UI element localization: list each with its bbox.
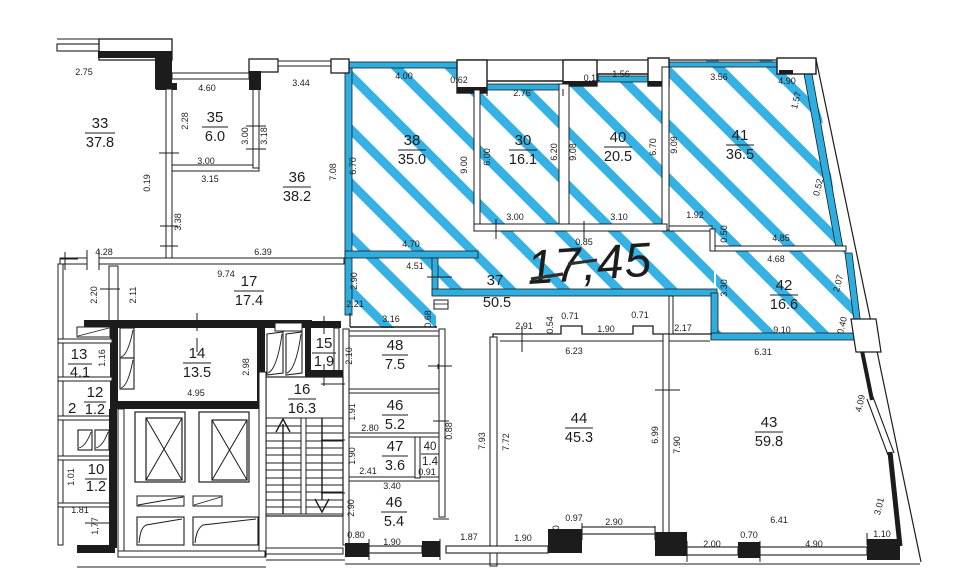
svg-text:4.95: 4.95 <box>187 388 205 398</box>
svg-text:40: 40 <box>610 129 627 146</box>
svg-text:0.70: 0.70 <box>740 530 758 540</box>
svg-text:0.80: 0.80 <box>347 530 365 540</box>
svg-text:6.70: 6.70 <box>648 138 658 156</box>
svg-text:6.20: 6.20 <box>549 143 559 161</box>
svg-text:38: 38 <box>404 132 421 149</box>
svg-text:46: 46 <box>386 494 403 511</box>
svg-text:0.71: 0.71 <box>561 311 579 321</box>
svg-text:0.71: 0.71 <box>631 310 649 320</box>
svg-text:36.5: 36.5 <box>726 147 754 163</box>
svg-text:4.90: 4.90 <box>778 76 796 86</box>
svg-text:2.80: 2.80 <box>361 423 379 433</box>
svg-text:4.70: 4.70 <box>402 239 420 249</box>
svg-text:9.09: 9.09 <box>669 136 679 154</box>
svg-text:12: 12 <box>87 384 104 401</box>
svg-text:6.31: 6.31 <box>754 347 772 357</box>
svg-text:37: 37 <box>487 272 504 289</box>
svg-text:17,45: 17,45 <box>525 234 654 296</box>
svg-text:17: 17 <box>241 273 258 290</box>
svg-text:0.88: 0.88 <box>444 422 454 440</box>
svg-text:7.90: 7.90 <box>672 436 682 454</box>
svg-text:1.9: 1.9 <box>314 354 334 370</box>
svg-text:2.90: 2.90 <box>605 517 623 527</box>
svg-text:6.41: 6.41 <box>770 515 788 525</box>
svg-text:2.98: 2.98 <box>241 358 251 376</box>
svg-text:1.91: 1.91 <box>347 403 357 421</box>
svg-text:50.5: 50.5 <box>483 295 511 311</box>
svg-text:13.5: 13.5 <box>183 365 211 381</box>
svg-text:6.39: 6.39 <box>254 247 272 257</box>
svg-text:0.50: 0.50 <box>719 225 729 243</box>
svg-text:35: 35 <box>207 109 224 126</box>
svg-text:30: 30 <box>515 132 532 149</box>
svg-text:46: 46 <box>387 397 404 414</box>
svg-text:3.15: 3.15 <box>201 174 219 184</box>
svg-text:42: 42 <box>776 277 793 294</box>
svg-text:16.6: 16.6 <box>770 297 798 313</box>
svg-text:1.56: 1.56 <box>612 69 630 79</box>
svg-text:35.0: 35.0 <box>398 152 426 168</box>
svg-text:10: 10 <box>88 461 105 478</box>
svg-text:4.51: 4.51 <box>406 261 424 271</box>
svg-text:3.00: 3.00 <box>197 156 215 166</box>
svg-text:7.08: 7.08 <box>328 163 338 181</box>
svg-text:3.56: 3.56 <box>710 72 728 82</box>
svg-text:48: 48 <box>387 337 404 354</box>
svg-text:2.17: 2.17 <box>674 323 692 333</box>
svg-text:9.00: 9.00 <box>459 156 469 174</box>
svg-text:1.90: 1.90 <box>383 537 401 547</box>
svg-text:2.10: 2.10 <box>344 347 354 365</box>
svg-text:3.38: 3.38 <box>173 213 183 231</box>
svg-text:0.68: 0.68 <box>423 310 433 328</box>
svg-text:6.23: 6.23 <box>565 346 583 356</box>
svg-text:16.3: 16.3 <box>288 401 316 417</box>
svg-text:9.10: 9.10 <box>773 325 791 335</box>
svg-text:6.00: 6.00 <box>482 148 492 166</box>
svg-text:4.60: 4.60 <box>198 83 216 93</box>
svg-text:1.90: 1.90 <box>597 324 615 334</box>
svg-text:3.16: 3.16 <box>382 314 400 324</box>
svg-text:2.28: 2.28 <box>180 112 190 130</box>
svg-text:3.00: 3.00 <box>506 212 524 222</box>
svg-text:7.72: 7.72 <box>501 433 511 451</box>
svg-text:1.10: 1.10 <box>873 529 891 539</box>
svg-text:5.4: 5.4 <box>384 514 404 530</box>
svg-text:2.20: 2.20 <box>89 286 99 304</box>
svg-text:47: 47 <box>387 438 404 455</box>
svg-text:3.18: 3.18 <box>259 127 269 145</box>
svg-text:43: 43 <box>761 414 778 431</box>
svg-text:2.21: 2.21 <box>346 299 364 309</box>
svg-text:0.80: 0.80 <box>551 525 561 543</box>
svg-text:4.00: 4.00 <box>395 71 413 81</box>
svg-text:59.8: 59.8 <box>755 434 783 450</box>
svg-text:2.76: 2.76 <box>513 88 531 98</box>
svg-text:1.01: 1.01 <box>66 468 76 486</box>
svg-text:7.5: 7.5 <box>385 357 405 373</box>
svg-text:3.00: 3.00 <box>240 127 250 145</box>
svg-text:40: 40 <box>424 441 437 453</box>
svg-text:6.0: 6.0 <box>205 129 225 145</box>
svg-text:2.75: 2.75 <box>75 67 93 77</box>
svg-text:44: 44 <box>571 410 588 427</box>
svg-text:1,77: 1,77 <box>90 517 100 535</box>
svg-text:1.90: 1.90 <box>514 533 532 543</box>
svg-text:4.90: 4.90 <box>805 539 823 549</box>
svg-text:37.8: 37.8 <box>86 135 114 151</box>
svg-text:1.90: 1.90 <box>347 447 357 465</box>
svg-text:33: 33 <box>92 115 109 132</box>
svg-text:9.08: 9.08 <box>568 143 578 161</box>
svg-text:1.16: 1.16 <box>97 349 107 367</box>
svg-text:3.30: 3.30 <box>719 279 729 297</box>
svg-text:45.3: 45.3 <box>565 430 593 446</box>
svg-text:16: 16 <box>294 381 311 398</box>
svg-text:0.62: 0.62 <box>450 75 468 85</box>
svg-text:1.2: 1.2 <box>86 479 106 495</box>
svg-text:3.6: 3.6 <box>385 458 405 474</box>
svg-text:2.90: 2.90 <box>349 272 359 290</box>
svg-text:4.28: 4.28 <box>95 247 113 257</box>
svg-text:2.11: 2.11 <box>128 287 138 304</box>
svg-text:4.85: 4.85 <box>772 233 790 243</box>
svg-text:7.93: 7.93 <box>477 432 487 450</box>
svg-text:2.91: 2.91 <box>515 321 533 331</box>
svg-text:3.44: 3.44 <box>292 78 310 88</box>
svg-text:2.41: 2.41 <box>359 466 377 476</box>
svg-text:6.99: 6.99 <box>650 426 660 444</box>
svg-text:0.19: 0.19 <box>142 174 152 192</box>
svg-text:1.81: 1.81 <box>71 505 89 515</box>
svg-text:2.00: 2.00 <box>703 539 721 549</box>
svg-text:1.92: 1.92 <box>686 210 704 220</box>
svg-text:16.1: 16.1 <box>509 152 537 168</box>
svg-text:3.10: 3.10 <box>610 212 628 222</box>
svg-text:3.40: 3.40 <box>383 481 401 491</box>
svg-text:0.11: 0.11 <box>584 73 601 83</box>
svg-text:38.2: 38.2 <box>283 189 311 205</box>
svg-text:0.91: 0.91 <box>418 467 436 477</box>
svg-text:20.5: 20.5 <box>604 149 632 165</box>
svg-text:9.74: 9.74 <box>217 269 235 279</box>
svg-text:13: 13 <box>71 346 88 363</box>
svg-text:2.90: 2.90 <box>346 499 356 517</box>
svg-text:1.2: 1.2 <box>85 402 105 418</box>
svg-text:0.54: 0.54 <box>545 316 555 334</box>
svg-text:14: 14 <box>189 345 206 362</box>
svg-text:36: 36 <box>289 169 306 186</box>
svg-text:5.2: 5.2 <box>385 417 405 433</box>
svg-text:2: 2 <box>68 400 76 417</box>
svg-text:1.87: 1.87 <box>460 532 478 542</box>
svg-text:6.70: 6.70 <box>348 157 358 175</box>
svg-text:41: 41 <box>732 127 749 144</box>
svg-text:4.1: 4.1 <box>70 365 90 381</box>
svg-text:17.4: 17.4 <box>235 293 263 309</box>
svg-text:0.97: 0.97 <box>565 513 583 523</box>
svg-text:15: 15 <box>316 335 333 352</box>
svg-text:4.68: 4.68 <box>767 254 785 264</box>
